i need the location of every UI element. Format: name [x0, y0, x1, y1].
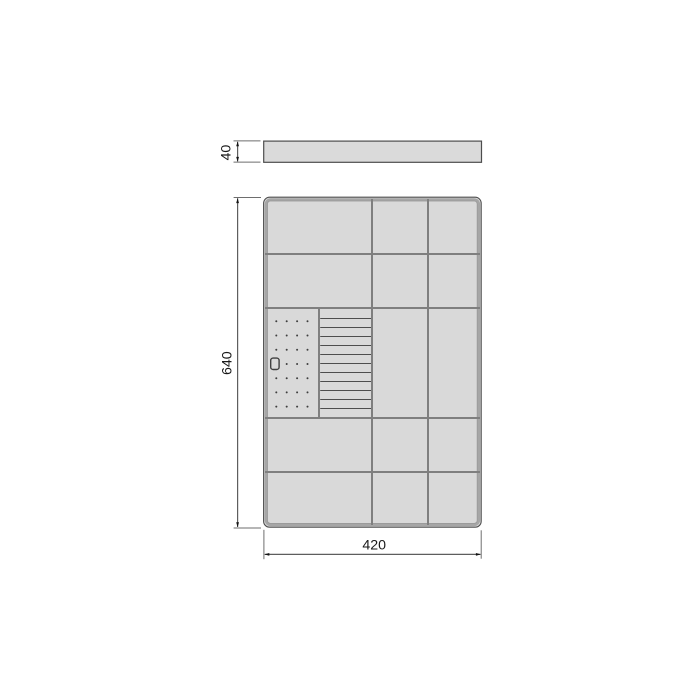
- svg-text:40: 40: [219, 145, 235, 161]
- svg-text:640: 640: [219, 351, 235, 375]
- svg-text:420: 420: [362, 538, 386, 554]
